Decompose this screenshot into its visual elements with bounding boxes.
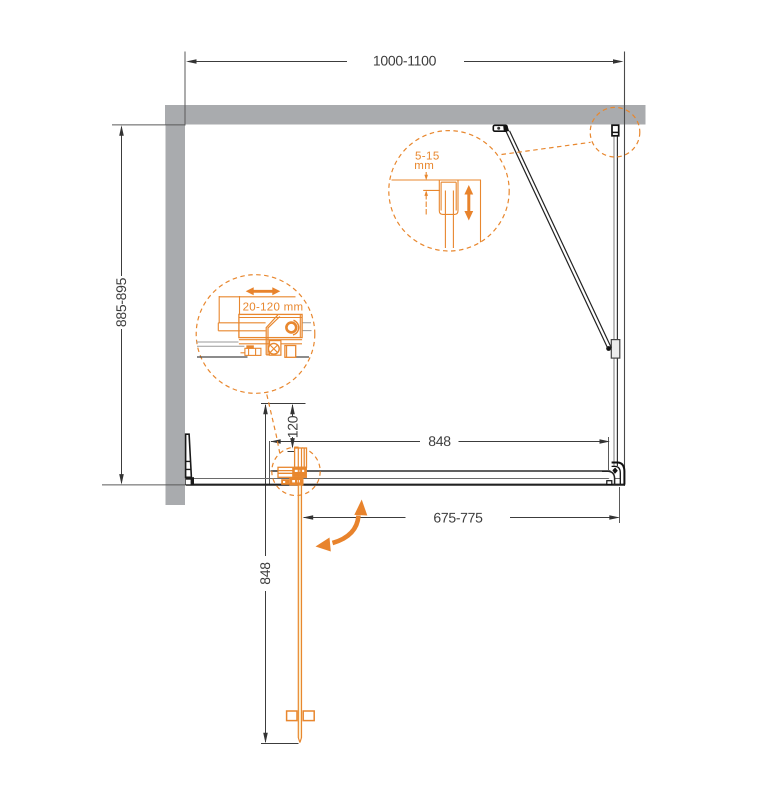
svg-text:848: 848 [428,433,451,449]
svg-text:20-120 mm: 20-120 mm [243,302,304,314]
svg-text:848: 848 [257,562,273,585]
svg-text:mm: mm [414,160,434,172]
svg-text:885-895: 885-895 [113,277,129,327]
svg-text:1000-1100: 1000-1100 [373,53,437,69]
svg-text:675-775: 675-775 [433,509,483,525]
svg-text:120: 120 [284,415,300,438]
